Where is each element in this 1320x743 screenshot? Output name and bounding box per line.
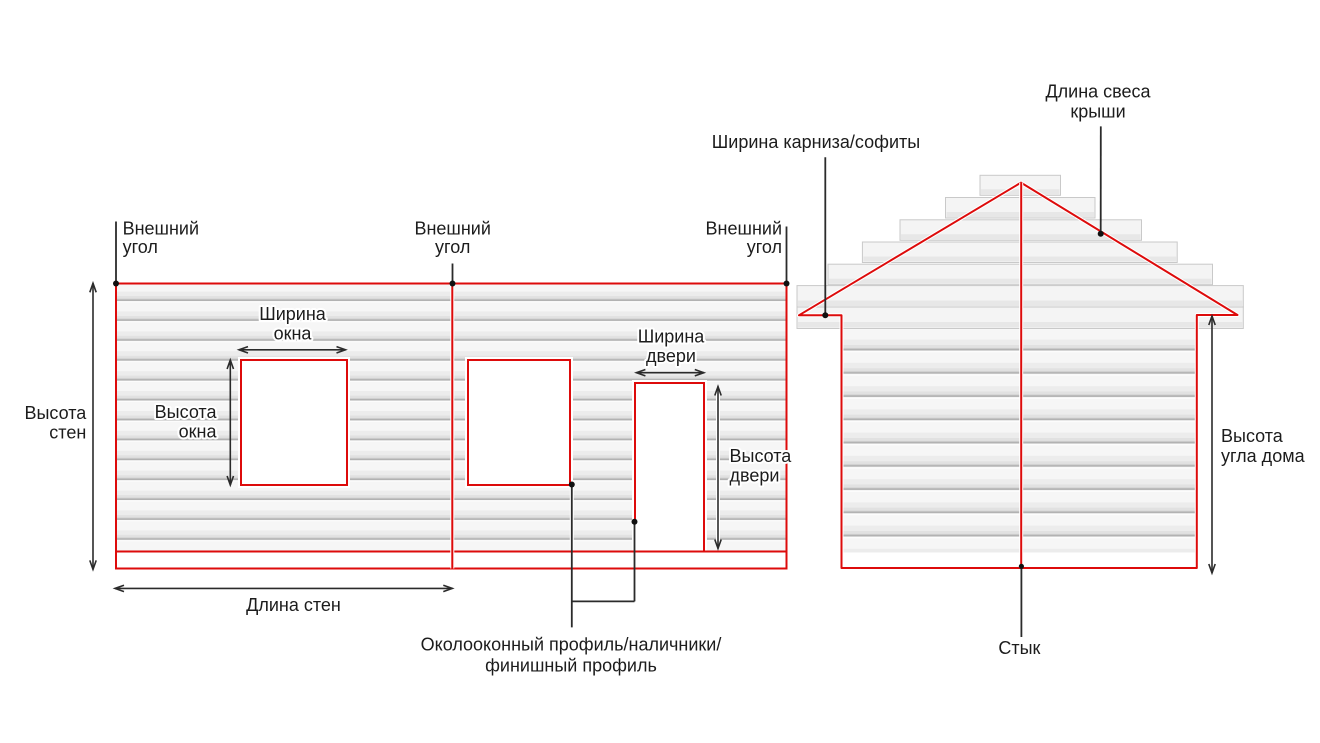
svg-text:Высота: Высота xyxy=(155,402,218,422)
svg-text:угол: угол xyxy=(123,237,158,257)
svg-text:стен: стен xyxy=(49,422,86,442)
svg-text:крыши: крыши xyxy=(1070,101,1125,121)
svg-text:Высота: Высота xyxy=(730,446,793,466)
svg-text:Ширина карниза/софиты: Ширина карниза/софиты xyxy=(712,132,920,152)
svg-text:Высота: Высота xyxy=(24,403,87,423)
svg-text:Околооконный профиль/наличники: Околооконный профиль/наличники/ xyxy=(421,635,722,655)
svg-text:Ширина: Ширина xyxy=(259,304,327,324)
svg-text:Внешний: Внешний xyxy=(414,219,490,239)
svg-text:угла дома: угла дома xyxy=(1221,446,1306,466)
svg-text:угол: угол xyxy=(435,237,470,257)
svg-text:Высота: Высота xyxy=(1221,426,1284,446)
svg-text:Внешний: Внешний xyxy=(706,219,782,239)
svg-text:Длина свеса: Длина свеса xyxy=(1045,81,1151,101)
svg-text:Длина стен: Длина стен xyxy=(246,595,341,615)
svg-text:двери: двери xyxy=(730,466,780,486)
svg-text:Стык: Стык xyxy=(998,638,1040,658)
svg-text:двери: двери xyxy=(646,346,696,366)
svg-text:Ширина: Ширина xyxy=(638,327,706,347)
svg-text:финишный профиль: финишный профиль xyxy=(485,655,657,675)
svg-text:окна: окна xyxy=(274,323,313,343)
svg-text:Внешний: Внешний xyxy=(123,219,199,239)
svg-text:окна: окна xyxy=(179,421,218,441)
svg-text:угол: угол xyxy=(747,237,782,257)
